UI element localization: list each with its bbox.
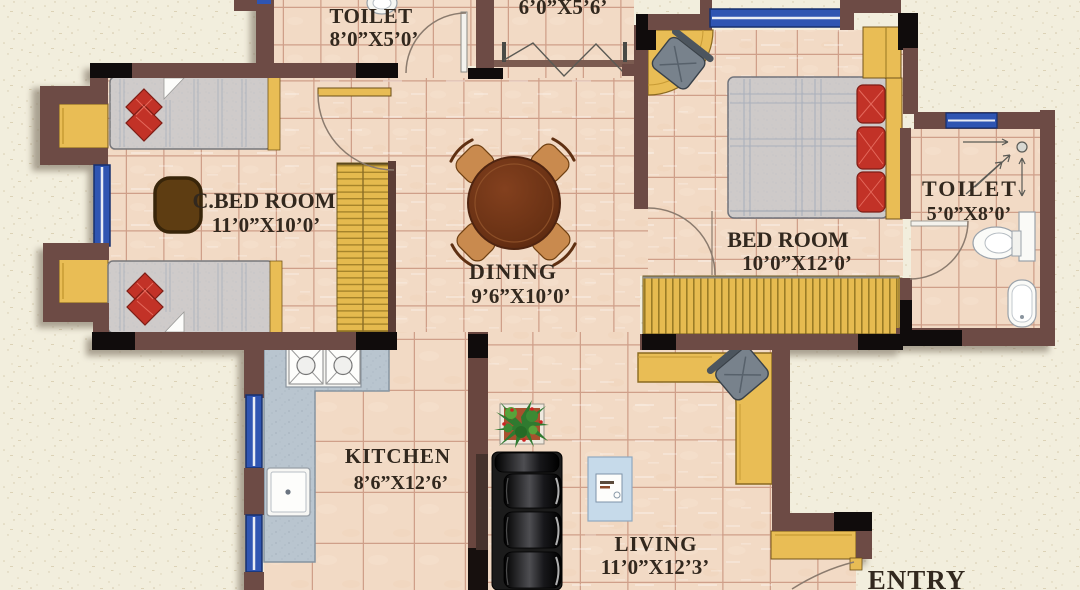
svg-text:10’0”X12’0’: 10’0”X12’0’ [742,251,852,275]
svg-text:9’6”X10’0’: 9’6”X10’0’ [471,284,570,308]
svg-text:8’6”X12’6’: 8’6”X12’6’ [354,472,448,494]
svg-text:LIVING: LIVING [614,532,697,556]
svg-text:TOILET: TOILET [329,4,412,28]
svg-text:DINING: DINING [469,259,557,284]
svg-text:C.BED ROOM: C.BED ROOM [193,188,336,213]
svg-text:11’0”X10’0’: 11’0”X10’0’ [212,213,321,237]
svg-text:BED ROOM: BED ROOM [727,227,849,252]
svg-text:11’0”X12’3’: 11’0”X12’3’ [601,555,710,579]
svg-text:TOILET: TOILET [922,176,1018,201]
svg-text:KITCHEN: KITCHEN [345,444,451,468]
svg-text:5’0”X8’0’: 5’0”X8’0’ [927,203,1011,225]
svg-text:ENTRY: ENTRY [868,565,967,590]
svg-text:6’0”X5’6’: 6’0”X5’6’ [519,0,608,19]
svg-text:8’0”X5’0’: 8’0”X5’0’ [330,27,419,51]
